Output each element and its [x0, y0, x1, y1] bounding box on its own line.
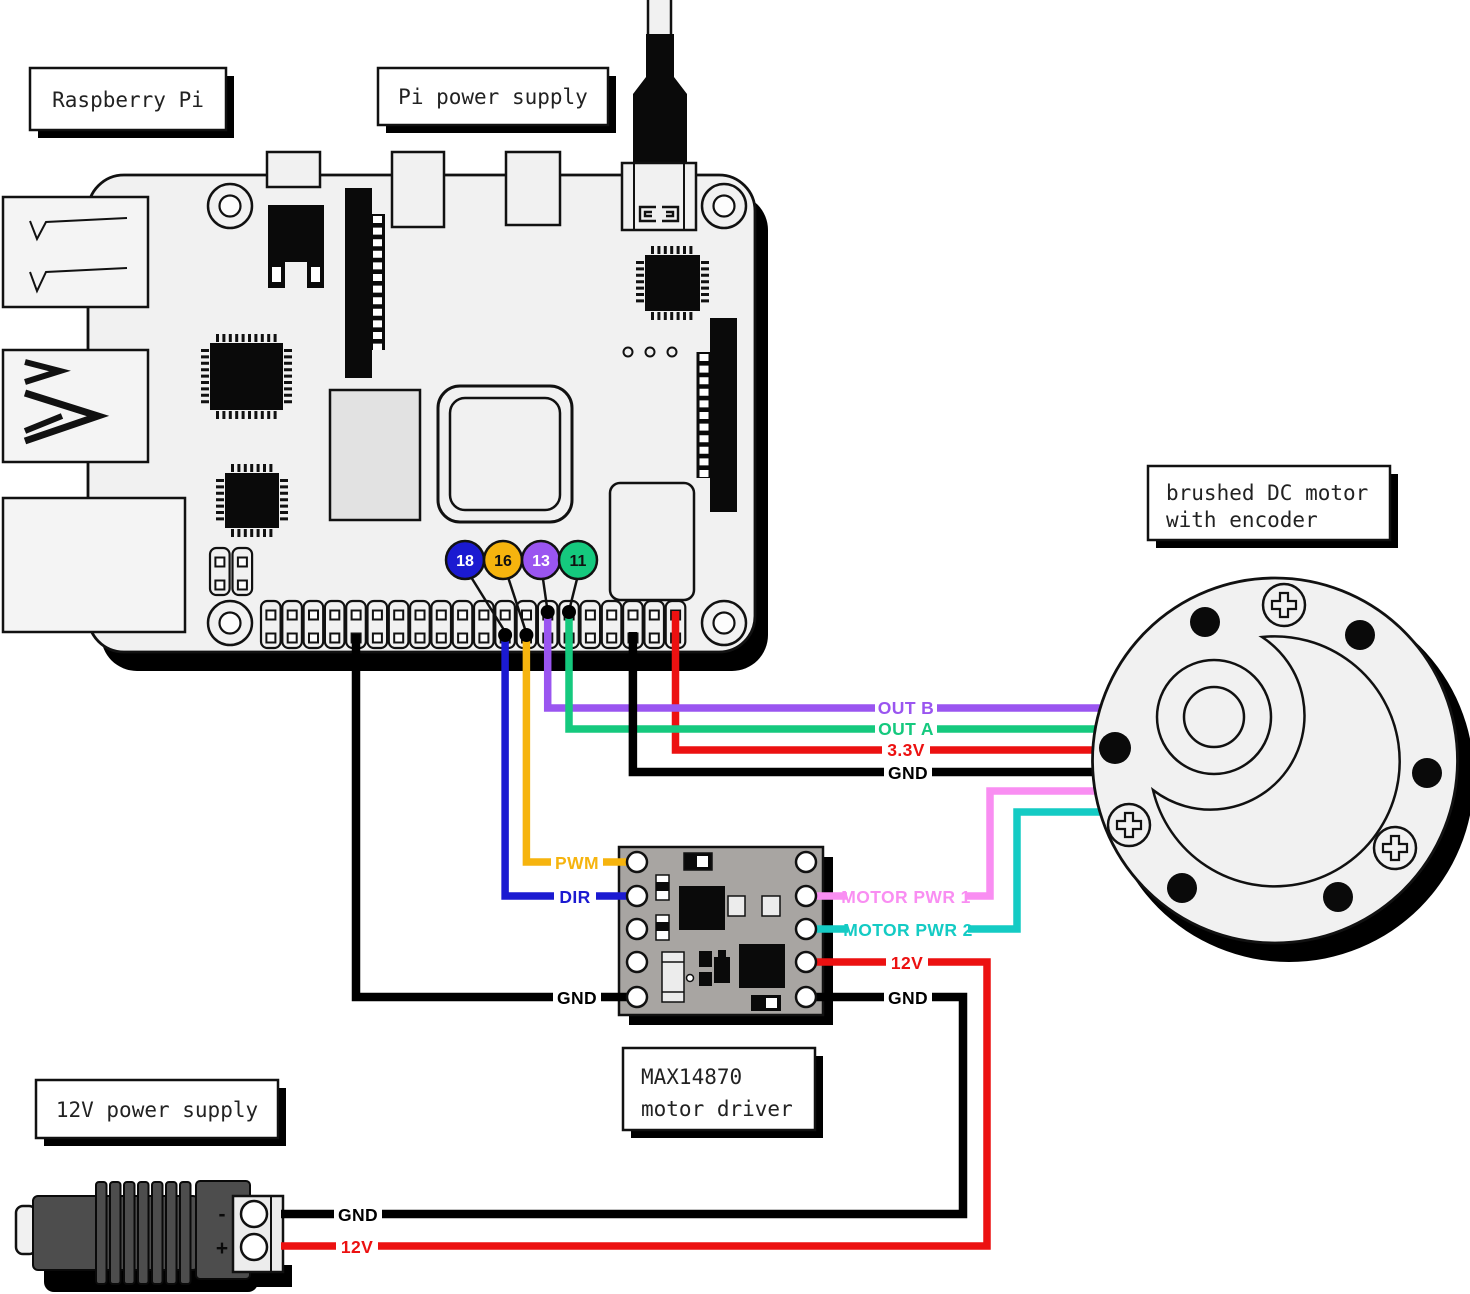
wire-label-motor-pwr-1: MOTOR PWR 1	[841, 885, 971, 907]
barrel-ridges	[96, 1182, 191, 1284]
pi-power-plug	[622, 0, 696, 230]
ethernet-port	[3, 498, 185, 632]
wire-label-12v-driver: 12V	[886, 951, 928, 973]
gpio-badge-13: 13	[522, 541, 560, 579]
svg-text:MOTOR PWR 2: MOTOR PWR 2	[843, 920, 973, 940]
label-raspberry-pi: Raspberry Pi	[30, 68, 234, 138]
svg-text:GND: GND	[338, 1205, 378, 1225]
usb-c-receptacle	[622, 163, 696, 230]
pad-nc-1	[627, 919, 647, 939]
chip-wireless	[640, 250, 705, 316]
svg-text:PWM: PWM	[555, 853, 599, 873]
svg-text:MOTOR PWR 1: MOTOR PWR 1	[841, 887, 971, 907]
pin-dot-13	[541, 605, 555, 619]
pin-dot-16	[519, 628, 533, 642]
svg-text:DIR: DIR	[559, 887, 590, 907]
terminal-plus-label: +	[216, 1237, 228, 1260]
chip-small	[220, 468, 284, 533]
gpio-header	[261, 601, 685, 648]
terminal-screw-minus	[241, 1201, 267, 1227]
12v-power-supply-jack: - +	[16, 1181, 292, 1292]
pad-dir	[627, 886, 647, 906]
wire-label-motor-pwr-2: MOTOR PWR 2	[843, 918, 973, 940]
pad-12v	[796, 952, 816, 972]
sd-slot	[330, 390, 420, 520]
badge-16-label: 16	[494, 553, 512, 570]
svg-text:12V: 12V	[891, 953, 923, 973]
gpio-badge-11: 11	[559, 541, 597, 579]
wire-label-out-b: OUT B	[875, 697, 937, 718]
badge-11-label: 11	[570, 553, 587, 570]
wire-motor-pwr-1	[806, 791, 1120, 896]
pad-pwm	[627, 852, 647, 872]
wire-label-gnd-motor: GND	[884, 761, 932, 783]
wire-label-gnd-driver-right: GND	[884, 986, 932, 1008]
wire-label-pwm: PWM	[551, 851, 603, 873]
svg-text:3.3V: 3.3V	[887, 740, 925, 760]
pi-power-supply-title: Pi power supply	[398, 85, 588, 109]
usb-port-bottom	[3, 350, 148, 462]
dc-motor	[1093, 578, 1470, 962]
test-pad	[624, 348, 633, 357]
pad-nc-3	[796, 852, 816, 872]
badge-13-label: 13	[532, 553, 550, 570]
power-cord	[648, 0, 671, 36]
svg-text:12V: 12V	[341, 1237, 373, 1257]
test-pad	[668, 348, 677, 357]
display-connector	[345, 188, 378, 378]
badge-18-label: 18	[456, 553, 474, 570]
label-dc-motor: brushed DC motor with encoder	[1148, 466, 1398, 548]
motor-shaft	[1184, 687, 1244, 747]
motor-title-line1: brushed DC motor	[1166, 481, 1368, 505]
gpio-badge-16: 16	[484, 541, 522, 579]
svg-text:GND: GND	[557, 988, 597, 1008]
label-pi-power-supply: Pi power supply	[378, 68, 616, 133]
pin-dot-18	[498, 628, 512, 642]
terminal-screw-plus	[241, 1234, 267, 1260]
wire-label-gnd-supply: GND	[334, 1203, 382, 1225]
pad-motor-pwr-1	[796, 886, 816, 906]
supply-12v-title: 12V power supply	[56, 1098, 258, 1122]
driver-title-line2: motor driver	[641, 1097, 793, 1121]
label-12v-power-supply: 12V power supply	[36, 1080, 286, 1146]
pad-motor-pwr-2	[796, 919, 816, 939]
terminal-minus-label: -	[219, 1203, 226, 1226]
wire-label-3v3: 3.3V	[882, 739, 930, 760]
motor-body	[1093, 578, 1458, 943]
terminal-block	[233, 1196, 283, 1272]
wire-label-12v-supply: 12V	[336, 1235, 378, 1257]
pad-nc-2	[627, 952, 647, 972]
svg-text:GND: GND	[888, 988, 928, 1008]
soc-chip	[438, 386, 572, 522]
motor-title-line2: with encoder	[1166, 508, 1318, 532]
test-pad	[646, 348, 655, 357]
svg-text:GND: GND	[888, 763, 928, 783]
pin-dot-11	[562, 605, 576, 619]
driver-title-line1: MAX14870	[641, 1065, 742, 1089]
gpio-badge-18: 18	[446, 541, 484, 579]
wire-label-dir: DIR	[554, 885, 596, 907]
svg-text:OUT A: OUT A	[878, 719, 934, 739]
svg-text:OUT B: OUT B	[878, 698, 934, 718]
driver-pcb	[619, 847, 823, 1015]
plug-body	[633, 34, 687, 164]
wiring-diagram: - + 18	[0, 0, 1470, 1294]
usb-port-top	[3, 197, 148, 307]
hdmi-port-1	[392, 152, 444, 227]
chip-large	[205, 338, 288, 415]
label-max14870: MAX14870 motor driver	[623, 1048, 823, 1138]
raspberry-pi-title: Raspberry Pi	[52, 88, 204, 112]
hdmi-port-2	[506, 152, 560, 225]
wire-gnd-pi-to-driver	[356, 634, 630, 997]
pad-gnd-right	[796, 987, 816, 1007]
wire-label-out-a: OUT A	[875, 718, 937, 739]
usb-controller	[610, 483, 694, 600]
wire-label-gnd-driver-left: GND	[553, 986, 601, 1008]
wire-motor-pwr-2	[806, 812, 1120, 929]
pad-gnd-left	[627, 987, 647, 1007]
